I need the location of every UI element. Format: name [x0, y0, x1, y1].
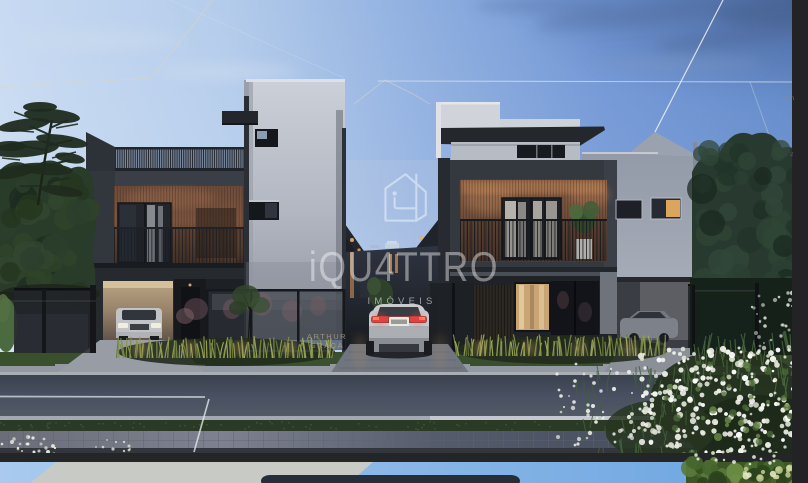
svg-text:ARTHUR: ARTHUR	[307, 332, 347, 341]
svg-text:GRAÇA: GRAÇA	[310, 341, 344, 350]
svg-text:iQU4TTRO: iQU4TTRO	[309, 244, 499, 290]
svg-text:IMÓVEIS: IMÓVEIS	[368, 296, 437, 307]
svg-text:a m: a m	[784, 96, 794, 102]
